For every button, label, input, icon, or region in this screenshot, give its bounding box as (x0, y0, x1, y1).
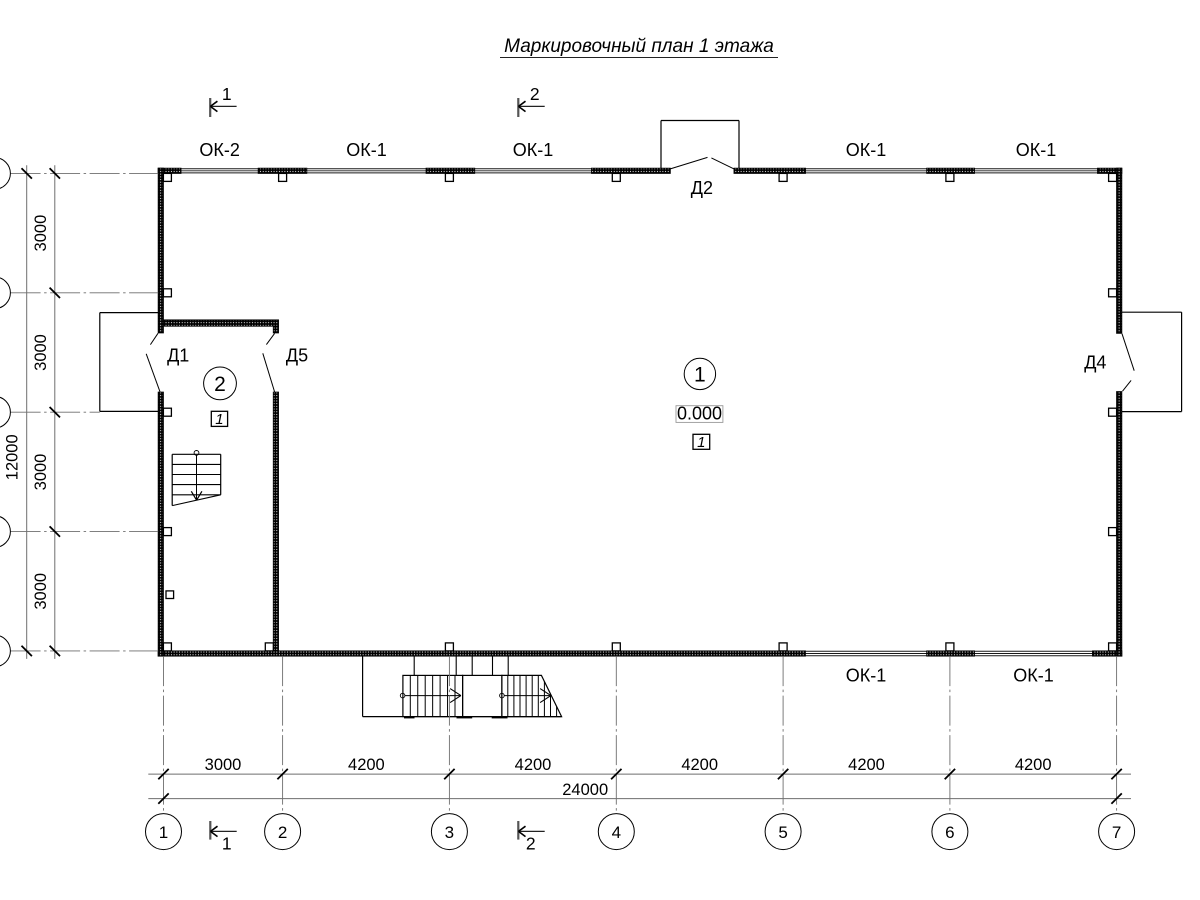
svg-text:1: 1 (697, 434, 705, 451)
svg-text:4200: 4200 (515, 756, 552, 774)
svg-text:Маркировочный план 1 этажа: Маркировочный план 1 этажа (504, 36, 774, 57)
svg-text:6: 6 (945, 823, 954, 842)
svg-text:ОК-1: ОК-1 (846, 140, 887, 160)
svg-text:7: 7 (1112, 823, 1121, 842)
svg-text:4200: 4200 (848, 756, 885, 774)
svg-text:ОК-1: ОК-1 (846, 666, 887, 686)
svg-text:3000: 3000 (32, 334, 50, 371)
svg-text:ОК-1: ОК-1 (513, 140, 554, 160)
svg-text:ОК-2: ОК-2 (199, 140, 240, 160)
svg-text:1: 1 (222, 834, 232, 854)
svg-text:4200: 4200 (681, 756, 718, 774)
svg-text:2: 2 (526, 834, 536, 854)
svg-text:1: 1 (694, 363, 706, 386)
svg-text:3000: 3000 (32, 215, 50, 252)
svg-text:ОК-1: ОК-1 (1013, 666, 1054, 686)
svg-text:Д5: Д5 (286, 346, 308, 366)
svg-text:1: 1 (222, 84, 232, 104)
svg-text:2: 2 (278, 823, 287, 842)
svg-text:4200: 4200 (348, 756, 385, 774)
svg-text:5: 5 (778, 823, 787, 842)
svg-text:4: 4 (612, 823, 621, 842)
svg-text:12000: 12000 (4, 434, 22, 480)
svg-text:3000: 3000 (32, 573, 50, 610)
svg-text:Д1: Д1 (167, 345, 189, 365)
svg-text:ОК-1: ОК-1 (346, 140, 387, 160)
svg-text:Д4: Д4 (1084, 352, 1106, 372)
svg-text:3000: 3000 (32, 454, 50, 491)
svg-text:2: 2 (530, 84, 540, 104)
svg-text:ОК-1: ОК-1 (1016, 140, 1057, 160)
svg-text:1: 1 (215, 411, 223, 428)
svg-text:4200: 4200 (1015, 756, 1052, 774)
svg-text:0.000: 0.000 (677, 403, 722, 423)
svg-text:2: 2 (214, 373, 226, 396)
svg-text:Д2: Д2 (691, 178, 713, 198)
svg-text:3000: 3000 (205, 756, 242, 774)
svg-text:1: 1 (159, 823, 168, 842)
svg-text:3: 3 (445, 823, 454, 842)
svg-text:24000: 24000 (562, 781, 608, 799)
